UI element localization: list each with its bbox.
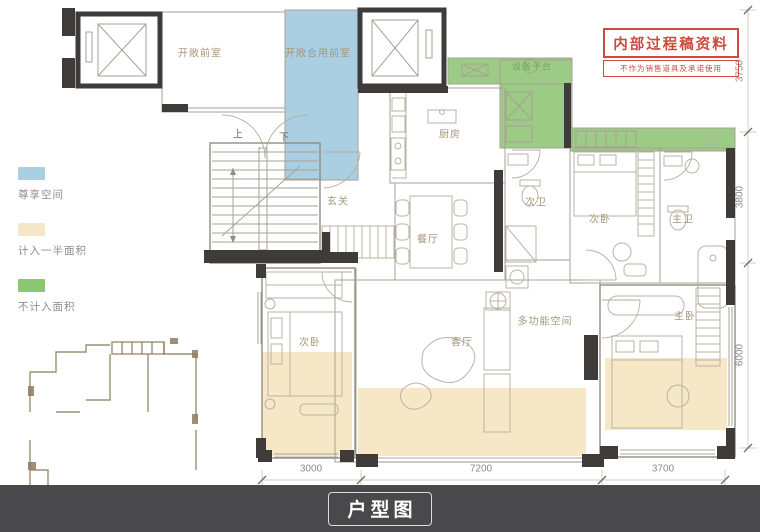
legend-swatch-green — [18, 279, 45, 292]
room-label-living-room: 客厅 — [451, 334, 473, 349]
floor-plan-drawing — [0, 0, 760, 532]
dim-bottom-right: 3700 — [652, 464, 674, 475]
thumbnail-sketch — [28, 338, 198, 485]
room-label-open-front-room: 开敞前室 — [178, 45, 222, 60]
stamp-subtitle: 不作为销售道具及承诺使用 — [603, 60, 739, 77]
legend-label: 不计入面积 — [18, 299, 87, 314]
dim-bottom-left: 3000 — [300, 464, 322, 475]
stamp-title: 内部过程稿资料 — [603, 28, 739, 58]
blue-area-shared-front-room — [285, 10, 358, 180]
stair-down-label: 下 — [279, 129, 289, 144]
cream-area-master-bedroom — [605, 358, 727, 430]
cream-area-living — [358, 388, 586, 456]
dim-bottom-center: 7200 — [470, 464, 492, 475]
room-label-shared-front-room: 开敞合用前室 — [285, 45, 351, 60]
legend: 尊享空间 计入一半面积 不计入面积 — [18, 167, 87, 335]
room-label-master-bath: 主卫 — [672, 211, 694, 226]
legend-swatch-blue — [18, 167, 45, 180]
legend-item-not-counted: 不计入面积 — [18, 279, 87, 314]
room-label-second-bath: 次卫 — [525, 194, 547, 209]
legend-label: 计入一半面积 — [18, 243, 87, 258]
dim-right-bottom: 6000 — [735, 344, 746, 366]
dim-right-middle: 3800 — [735, 186, 746, 208]
second-bath-fixtures — [506, 154, 540, 288]
legend-item-half-area: 计入一半面积 — [18, 223, 87, 258]
second-bedroom-right-furniture — [574, 152, 654, 276]
internal-draft-stamp: 内部过程稿资料 不作为销售道具及承诺使用 — [603, 28, 739, 77]
stair-up-label: 上 — [233, 126, 243, 141]
green-area-right-block — [500, 60, 572, 148]
room-label-second-bedroom-right: 次卧 — [589, 211, 611, 226]
elevator-right — [360, 10, 444, 86]
room-label-kitchen: 厨房 — [439, 126, 461, 141]
elevator-left — [62, 8, 160, 88]
room-label-entry-hall: 玄关 — [327, 193, 349, 208]
legend-item-exclusive-space: 尊享空间 — [18, 167, 87, 202]
legend-label: 尊享空间 — [18, 187, 87, 202]
room-label-dining-room: 餐厅 — [417, 231, 439, 246]
caption-bar: 户型图 — [0, 485, 760, 532]
legend-swatch-cream — [18, 223, 45, 236]
room-label-multifunction-space: 多功能空间 — [518, 313, 573, 328]
room-label-second-bedroom-left: 次卧 — [299, 334, 321, 349]
page-title: 户型图 — [328, 492, 431, 526]
room-label-equipment-platform: 设备平台 — [512, 60, 552, 73]
floor-plan-page: 开敞前室 开敞合用前室 玄关 厨房 设备平台 餐厅 次卫 次卧 主卫 客厅 多功… — [0, 0, 760, 532]
room-label-master-bedroom: 主卧 — [674, 308, 696, 323]
